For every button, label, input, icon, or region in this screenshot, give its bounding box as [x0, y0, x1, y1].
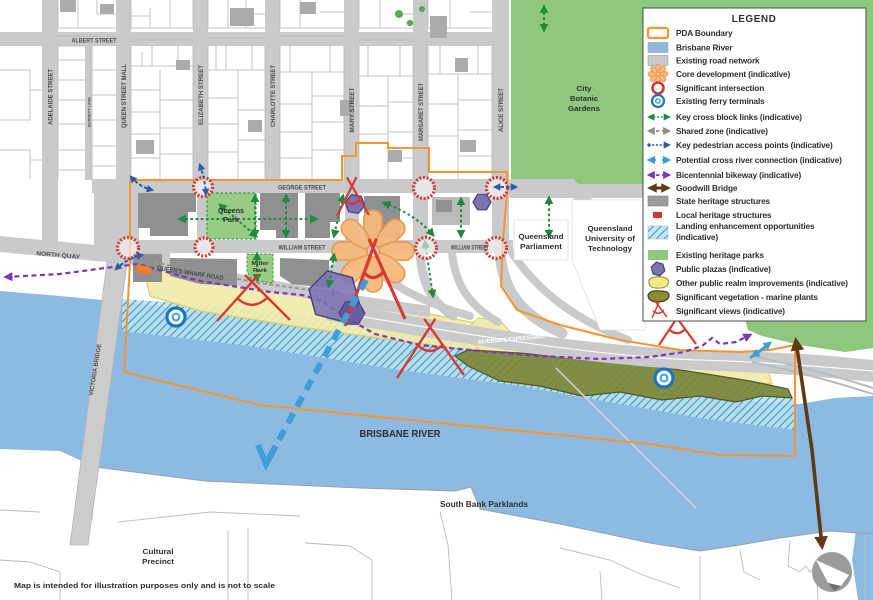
svg-text:Key pedestrian access points (: Key pedestrian access points (indicative… — [676, 140, 833, 150]
svg-text:ELIZABETH STREET: ELIZABETH STREET — [198, 65, 205, 125]
svg-text:Goodwill Bridge: Goodwill Bridge — [676, 183, 738, 193]
svg-text:Existing road network: Existing road network — [676, 56, 760, 66]
svg-text:Map is intended for illustrati: Map is intended for illustration purpose… — [14, 581, 275, 590]
svg-text:Significant views (indicative): Significant views (indicative) — [676, 306, 785, 316]
svg-text:Core development (indicative): Core development (indicative) — [676, 69, 791, 79]
svg-text:(indicative): (indicative) — [676, 232, 718, 242]
svg-text:Technology: Technology — [588, 244, 633, 253]
svg-text:MARY STREET: MARY STREET — [349, 87, 356, 132]
svg-text:MARGARET STREET: MARGARET STREET — [418, 83, 425, 141]
svg-text:Botanic: Botanic — [570, 94, 598, 103]
svg-text:Local heritage structures: Local heritage structures — [676, 210, 772, 220]
svg-text:Existing heritage parks: Existing heritage parks — [676, 250, 764, 260]
svg-text:Queensland: Queensland — [588, 224, 633, 233]
svg-text:Shared zone (indicative): Shared zone (indicative) — [676, 126, 768, 136]
svg-text:Park: Park — [223, 217, 239, 224]
svg-text:Cultural: Cultural — [143, 547, 174, 556]
svg-text:Parliament: Parliament — [520, 242, 563, 251]
svg-text:Other public realm improvement: Other public realm improvements (indicat… — [676, 278, 848, 288]
svg-text:GEORGE STREET: GEORGE STREET — [278, 185, 326, 192]
svg-text:PDA Boundary: PDA Boundary — [676, 28, 733, 38]
svg-text:South Bank Parklands: South Bank Parklands — [440, 500, 529, 509]
svg-text:Significant intersection: Significant intersection — [676, 83, 764, 93]
svg-text:Potential cross river connecti: Potential cross river connection (indica… — [676, 155, 842, 165]
svg-text:Park: Park — [253, 268, 268, 274]
svg-text:Landing enhancement opportunit: Landing enhancement opportunities — [676, 221, 815, 231]
svg-text:QUEEN STREET MALL: QUEEN STREET MALL — [121, 64, 128, 128]
svg-text:Precinct: Precinct — [142, 557, 175, 566]
svg-text:CHARLOTTE STREET: CHARLOTTE STREET — [270, 65, 277, 127]
svg-text:Queensland: Queensland — [519, 232, 564, 241]
svg-text:Key cross block links (indicat: Key cross block links (indicative) — [676, 112, 802, 122]
svg-text:Public plazas (indicative): Public plazas (indicative) — [676, 264, 771, 274]
svg-text:WILLIAM STREET: WILLIAM STREET — [451, 246, 489, 252]
svg-text:Significant vegetation - marin: Significant vegetation - marine plants — [676, 292, 818, 302]
svg-text:BRISBANE RIVER: BRISBANE RIVER — [360, 429, 442, 440]
svg-text:Existing ferry terminals: Existing ferry terminals — [676, 96, 765, 106]
svg-text:State heritage structures: State heritage structures — [676, 196, 771, 206]
svg-text:LEGEND: LEGEND — [732, 14, 777, 25]
svg-text:WILLIAM STREET: WILLIAM STREET — [279, 245, 326, 252]
svg-text:Miller: Miller — [252, 261, 270, 267]
svg-text:University of: University of — [585, 234, 636, 243]
svg-text:Gardens: Gardens — [568, 104, 600, 113]
svg-text:City: City — [577, 84, 593, 93]
svg-text:BURNETT LANE: BURNETT LANE — [87, 97, 92, 127]
svg-text:ALBERT STREET: ALBERT STREET — [72, 38, 117, 45]
svg-text:ALICE STREET: ALICE STREET — [498, 88, 505, 132]
svg-text:Brisbane River: Brisbane River — [676, 43, 733, 53]
svg-text:Bicentennial bikeway (indicati: Bicentennial bikeway (indicative) — [676, 170, 801, 180]
svg-text:Queens: Queens — [218, 208, 244, 215]
svg-text:ADELAIDE STREET: ADELAIDE STREET — [48, 69, 55, 125]
